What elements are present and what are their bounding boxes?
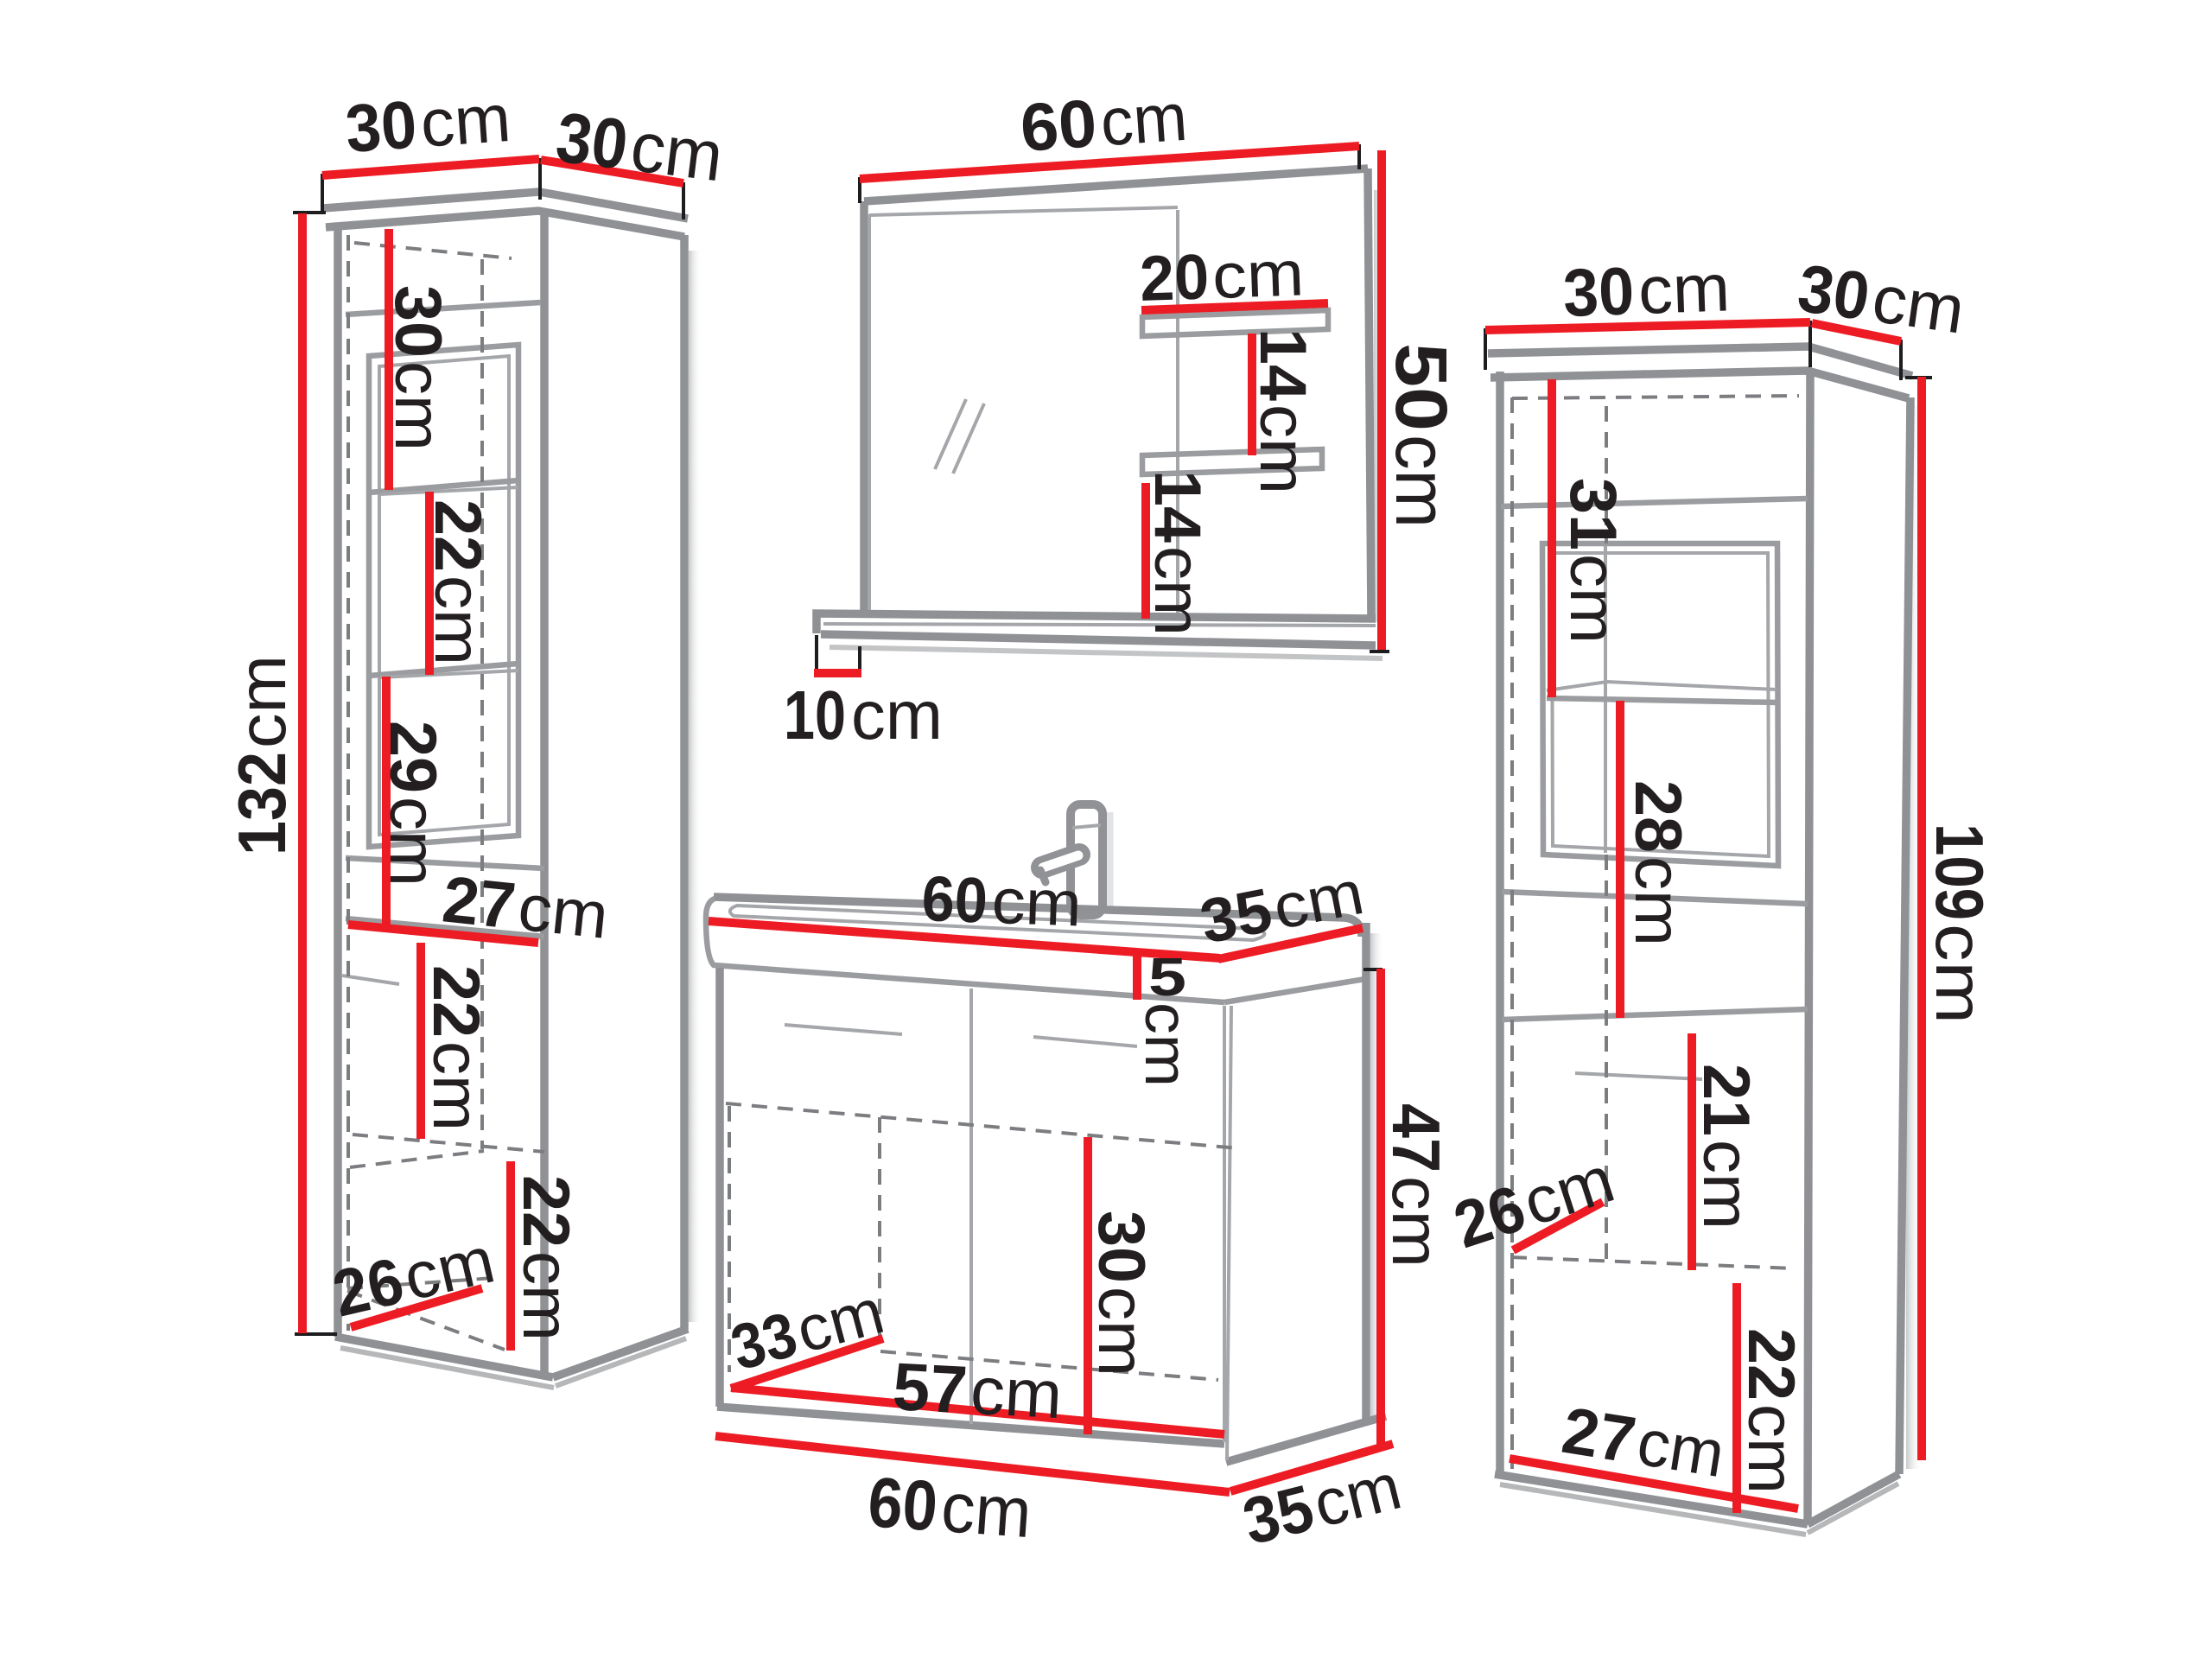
svg-text:cm: cm <box>1133 1002 1200 1087</box>
svg-text:30cm: 30cm <box>381 285 454 451</box>
svg-text:22cm: 22cm <box>1734 1328 1808 1494</box>
svg-text:28cm: 28cm <box>1621 780 1694 946</box>
svg-text:60cm: 60cm <box>1018 79 1190 166</box>
svg-text:60cm: 60cm <box>866 1463 1034 1553</box>
svg-text:29cm: 29cm <box>376 721 449 887</box>
svg-text:30cm: 30cm <box>343 79 513 167</box>
svg-text:30cm: 30cm <box>1562 249 1732 331</box>
svg-text:60cm: 60cm <box>920 862 1083 939</box>
svg-text:20cm: 20cm <box>1139 237 1306 315</box>
svg-text:57cm: 57cm <box>891 1348 1064 1433</box>
svg-text:10cm: 10cm <box>784 677 943 753</box>
svg-text:109cm: 109cm <box>1922 823 1998 1024</box>
svg-text:47cm: 47cm <box>1378 1103 1454 1268</box>
svg-text:22cm: 22cm <box>419 965 493 1131</box>
svg-text:50cm: 50cm <box>1381 343 1462 528</box>
svg-text:22cm: 22cm <box>421 499 494 665</box>
svg-text:14cm: 14cm <box>1246 328 1319 494</box>
svg-text:14cm: 14cm <box>1141 470 1214 636</box>
svg-text:22cm: 22cm <box>509 1175 582 1341</box>
svg-text:21cm: 21cm <box>1689 1064 1763 1230</box>
svg-text:30cm: 30cm <box>1084 1211 1158 1376</box>
svg-text:132cm: 132cm <box>224 655 300 855</box>
svg-text:31cm: 31cm <box>1556 478 1630 644</box>
svg-text:5: 5 <box>1148 948 1186 1007</box>
